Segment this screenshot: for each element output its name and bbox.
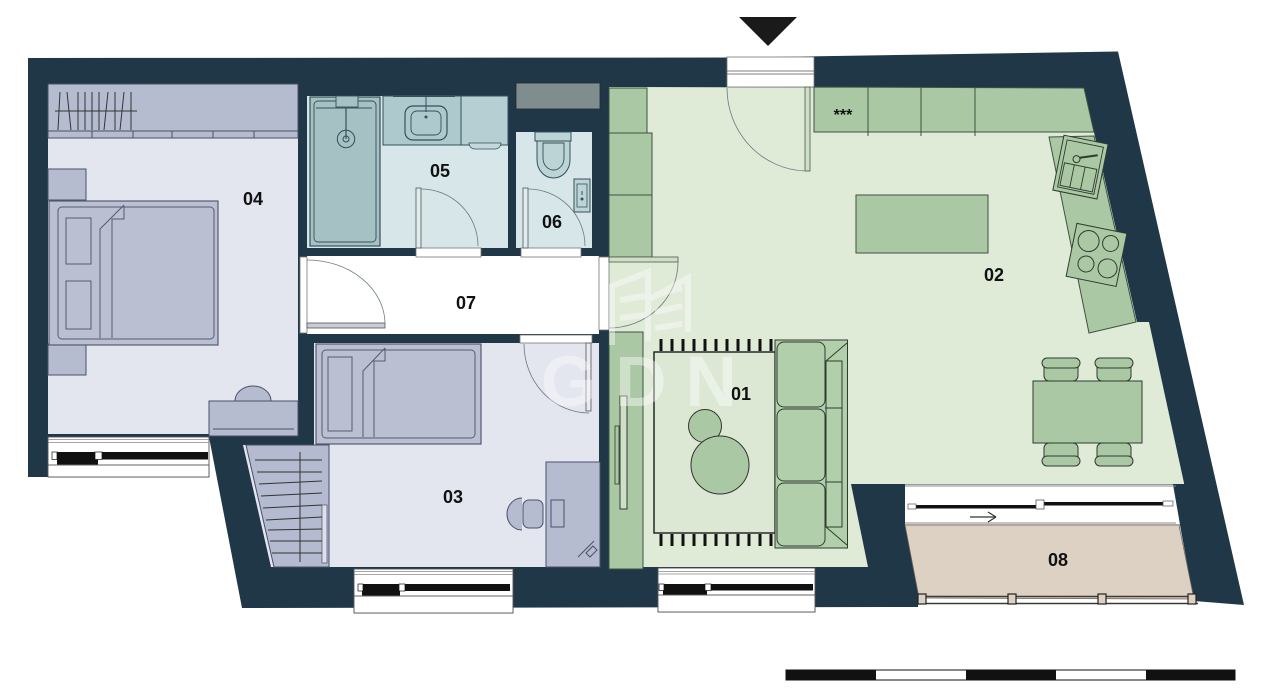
svg-text:02: 02 [984, 265, 1004, 285]
svg-text:08: 08 [1048, 550, 1068, 570]
svg-text:03: 03 [443, 487, 463, 507]
svg-text:GDN: GDN [541, 343, 756, 422]
svg-text:06: 06 [542, 212, 562, 232]
svg-text:07: 07 [456, 293, 476, 313]
svg-text:***: *** [834, 107, 853, 124]
svg-text:04: 04 [243, 189, 263, 209]
svg-text:05: 05 [430, 161, 450, 181]
